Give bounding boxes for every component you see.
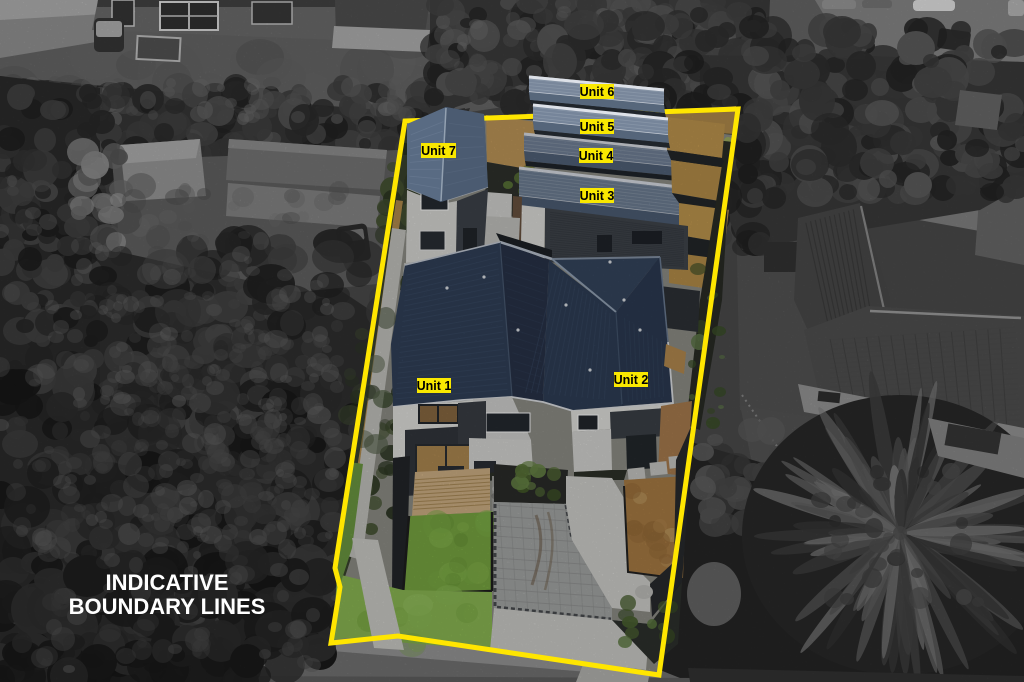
svg-text:Unit 7: Unit 7 [421, 144, 456, 158]
svg-text:Unit 4: Unit 4 [579, 149, 614, 163]
svg-text:Unit 5: Unit 5 [580, 120, 615, 134]
svg-text:BOUNDARY LINES: BOUNDARY LINES [69, 594, 266, 619]
svg-text:Unit 1: Unit 1 [417, 379, 452, 393]
svg-text:Unit 3: Unit 3 [580, 189, 615, 203]
svg-text:INDICATIVE: INDICATIVE [105, 570, 228, 595]
svg-text:Unit 6: Unit 6 [580, 85, 615, 99]
svg-text:Unit 2: Unit 2 [614, 373, 649, 387]
